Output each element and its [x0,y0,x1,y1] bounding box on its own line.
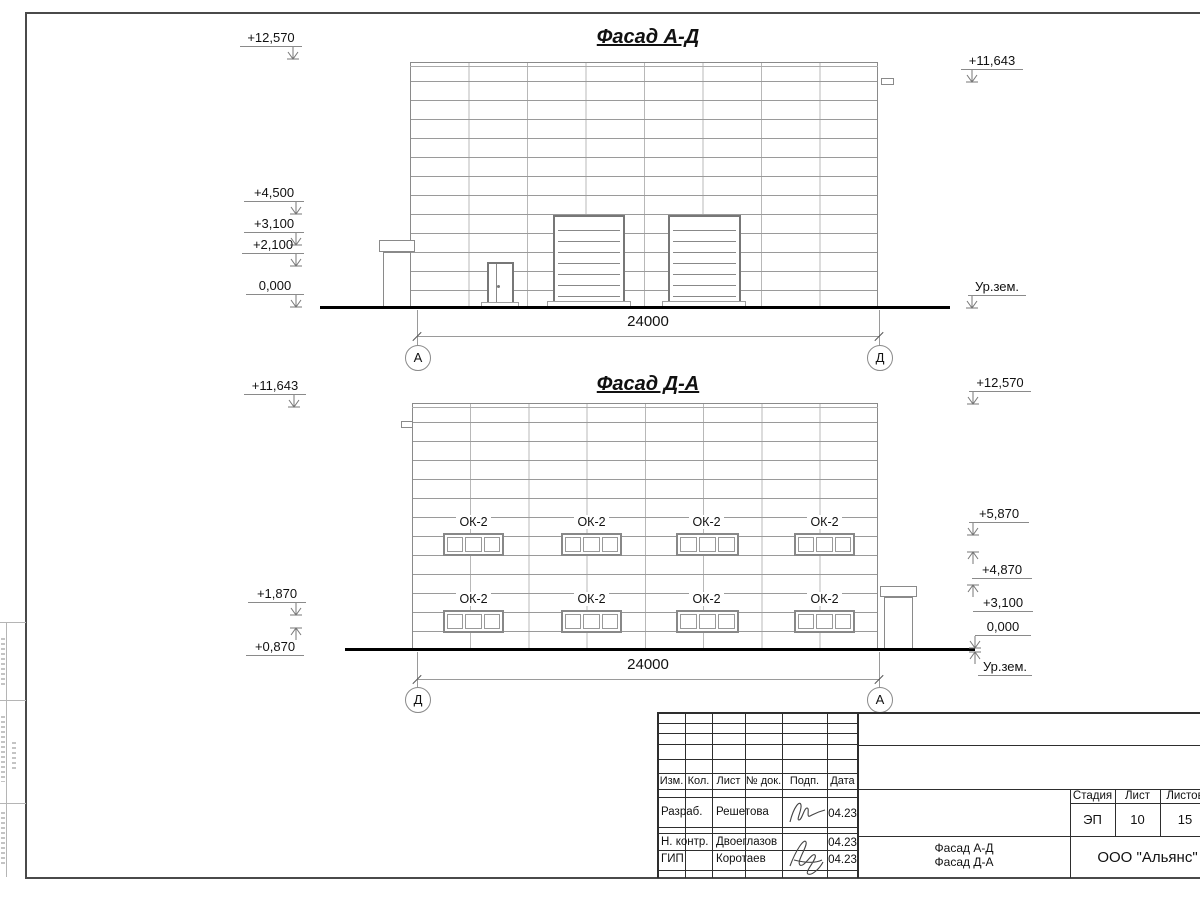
elevation-mark: +4,870 [972,563,1032,579]
window-label: ОК-2 [794,592,855,606]
tb-doc-name-line1: Фасад А-Д [858,841,1070,855]
tb-header-list: Лист [712,775,745,787]
extension-line [879,652,880,688]
titleblock-line [658,723,858,724]
margin-stamp-line [0,700,26,701]
window [676,533,739,556]
elevation-arrow-down-icon [286,47,300,60]
elevation-mark: +11,643 [244,379,306,395]
elevation-mark: +11,643 [961,54,1023,70]
facade-da-title: Фасад Д-А [520,373,776,396]
titleblock-line [658,797,858,798]
window [794,533,855,556]
titleblock-line [712,712,713,878]
parapet-line [412,407,878,408]
window [443,610,504,633]
titleblock-line [658,827,858,828]
entry-door [487,262,514,306]
elevation-arrow-down-icon [289,254,303,267]
elevation-mark: 0,000 [975,620,1031,636]
elevation-mark: +12,570 [240,31,302,47]
gate-1 [553,215,625,305]
elevation-arrow-down-icon [289,603,303,616]
axis-bubble: Д [867,345,893,371]
window-label: ОК-2 [794,515,855,529]
ground-line [345,648,975,651]
elevation-mark: +3,100 [244,217,304,233]
axis-bubble: А [405,345,431,371]
ground-level-mark: Ур.зем. [968,280,1026,296]
elevation-arrow-down-icon [966,392,980,405]
ground-line [320,306,950,309]
window-label: ОК-2 [443,592,504,606]
tb-header-ndok: № док. [745,775,782,787]
facade-ad-elevation [410,62,878,308]
elevation-mark: 0,000 [246,279,304,295]
titleblock-line [658,712,1200,714]
parapet-line [410,66,878,67]
elevation-mark: +5,870 [969,507,1029,523]
margin-stamp-vertical-text [1,638,5,688]
titleblock-line [858,745,1200,746]
axis-bubble: А [867,687,893,713]
tb-date: 04.23 [827,854,858,866]
elevation-mark: +4,500 [244,186,304,202]
elevation-mark: +2,100 [242,238,304,254]
titleblock-line [685,712,686,878]
extension-line [879,310,880,346]
window [443,533,504,556]
window-label: ОК-2 [561,592,622,606]
axis-bubble: Д [405,687,431,713]
tb-sheet-label: Лист [1115,790,1160,802]
extension-line [417,310,418,346]
tb-stage-label: Стадия [1070,790,1115,802]
elevation-arrow-down-icon [966,523,980,536]
titleblock-line [658,759,858,760]
frame-line-top [26,12,1200,14]
ground-level-mark: Ур.зем. [978,660,1032,676]
tb-header-izm: Изм. [658,775,685,787]
frame-line-left [25,12,27,879]
tb-role: Разраб. [661,806,702,818]
elevation-arrow-down-icon [287,395,301,408]
gate-2 [668,215,741,305]
annex-cap [379,240,415,252]
tb-role: Н. контр. [661,836,708,848]
extension-line [417,652,418,688]
gutter-outlet [881,78,894,85]
tb-header-kol: Кол. [685,775,712,787]
titleblock-line [1070,803,1200,804]
titleblock-line [858,836,1200,837]
titleblock-line [658,733,858,734]
margin-stamp-vertical-text [12,742,16,770]
dimension-label: 24000 [560,314,736,330]
titleblock-line [658,773,858,774]
window-label: ОК-2 [676,515,737,529]
margin-stamp-line [6,622,7,877]
gutter-outlet [401,421,413,428]
facade-ad-title: Фасад А-Д [520,26,776,49]
window [676,610,739,633]
annex [884,597,913,649]
tb-name: Двоеглазов [716,836,777,848]
tb-name: Коротаев [716,853,766,865]
tb-doc-name-line2: Фасад Д-А [858,855,1070,869]
tb-stage-value: ЭП [1070,812,1115,827]
tb-name: Решетова [716,806,769,818]
annex [383,252,411,307]
tb-sheet-value: 10 [1115,812,1160,827]
drawing-sheet: Фасад А-Д +12,570 +4,500 +3,100 +2,100 0… [0,0,1200,900]
tb-company: ООО "Альянс" [1070,849,1200,866]
margin-stamp-line [0,622,26,623]
elevation-mark: +3,100 [973,596,1033,612]
window [794,610,855,633]
tb-header-podp: Подп. [782,775,827,787]
window-label: ОК-2 [561,515,622,529]
tb-header-data: Дата [827,775,858,787]
elevation-arrow-down-icon [965,296,979,309]
elevation-mark: +0,870 [246,640,304,656]
annex-cap [880,586,917,597]
tb-sheets-value: 15 [1160,812,1200,827]
tb-doc-name: Фасад А-Д Фасад Д-А [858,841,1070,869]
tb-date: 04.23 [827,837,858,849]
window [561,610,622,633]
elevation-arrow-down-icon [968,636,982,649]
titleblock-line [658,870,858,871]
titleblock-line [658,850,858,851]
elevation-arrow-down-icon [289,295,303,308]
frame-line-bottom [26,877,1200,879]
dimension-line [417,679,880,680]
tb-role: ГИП [661,853,684,865]
dimension-line [417,336,880,337]
titleblock-line [657,712,659,878]
titleblock-line [658,744,858,745]
tb-sheets-label: Листов [1160,790,1200,802]
elevation-arrow-down-icon [289,202,303,215]
margin-stamp-line [0,803,26,804]
signature [784,796,828,828]
elevation-mark: +1,870 [248,587,306,603]
window [561,533,622,556]
margin-stamp-vertical-text [1,716,5,782]
margin-stamp-vertical-text [1,812,5,867]
dimension-label: 24000 [560,657,736,673]
signature [782,832,828,878]
elevation-arrow-down-icon [965,70,979,83]
window-label: ОК-2 [443,515,504,529]
elevation-mark: +12,570 [969,376,1031,392]
tb-date: 04.23 [827,808,858,820]
titleblock-line [658,833,858,834]
window-label: ОК-2 [676,592,737,606]
